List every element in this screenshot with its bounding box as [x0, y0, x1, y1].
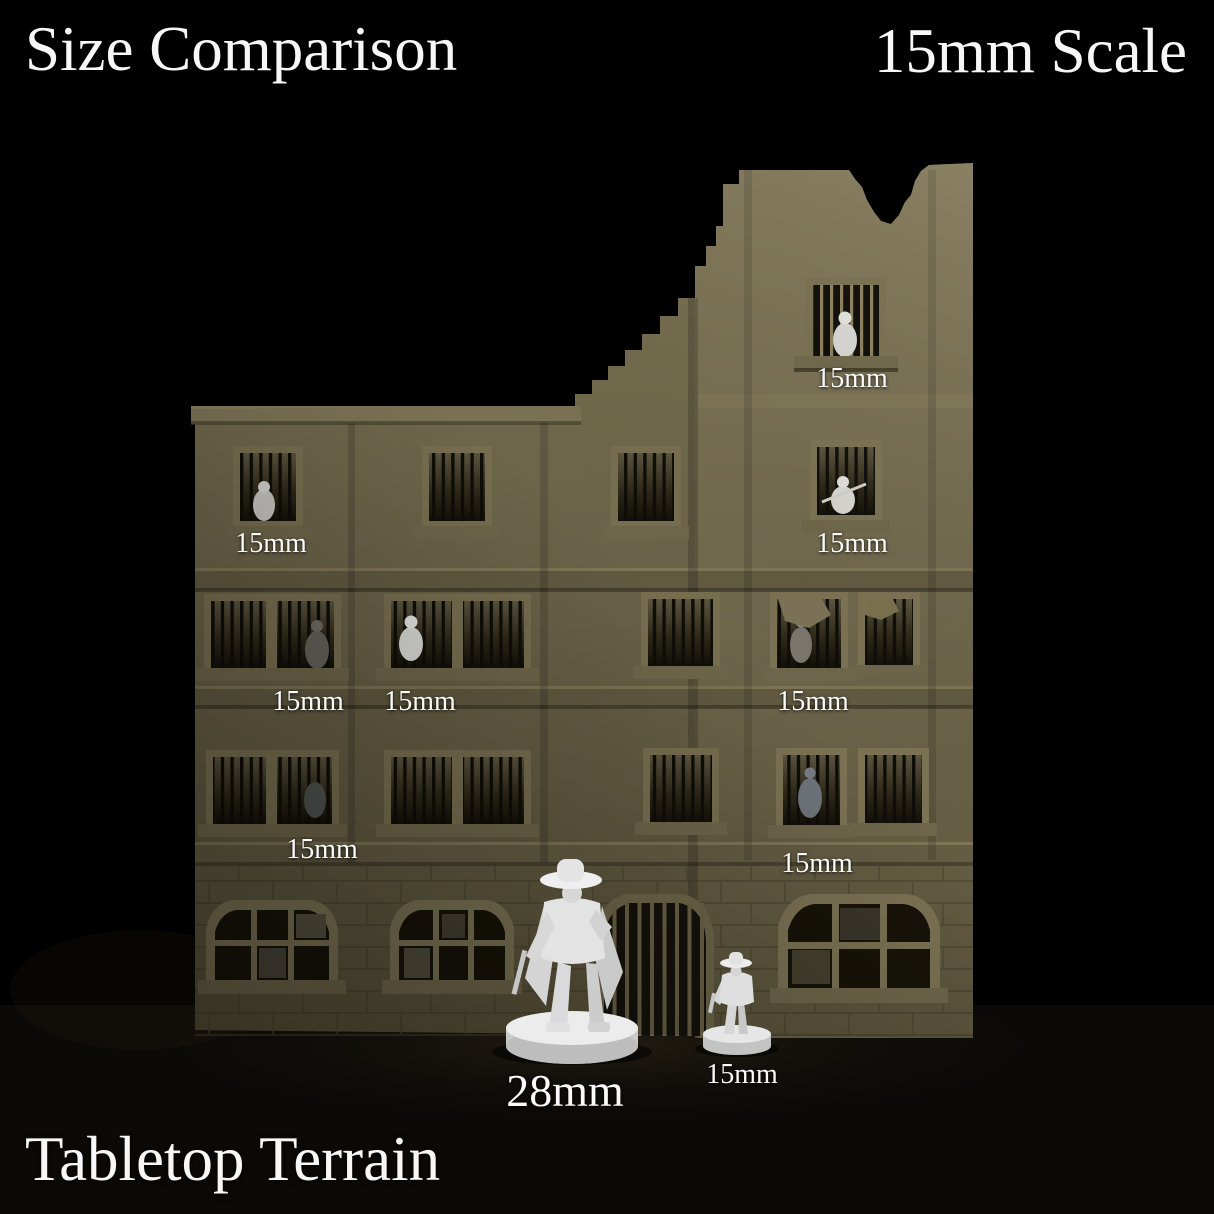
title-scale: 15mm Scale — [874, 20, 1187, 83]
scale-label-floor3-left2: 15mm — [384, 688, 456, 716]
scale-label-tower-top: 15mm — [816, 365, 888, 393]
brand-tabletop-terrain: Tabletop Terrain — [25, 1128, 440, 1191]
figure-label-28mm: 28mm — [506, 1068, 624, 1114]
scale-label-floor3-right: 15mm — [777, 688, 849, 716]
scale-label-floor2-right: 15mm — [781, 850, 853, 878]
figure-label-15mm: 15mm — [706, 1061, 778, 1089]
scale-label-floor4-tower: 15mm — [816, 530, 888, 558]
scale-label-floor2-left: 15mm — [286, 836, 358, 864]
building-render — [0, 0, 1214, 1214]
scale-label-floor3-left1: 15mm — [272, 688, 344, 716]
size-comparison-graphic: Size Comparison 15mm Scale Tabletop Terr… — [0, 0, 1214, 1214]
title-size-comparison: Size Comparison — [25, 18, 457, 81]
scale-label-floor4-left: 15mm — [235, 530, 307, 558]
